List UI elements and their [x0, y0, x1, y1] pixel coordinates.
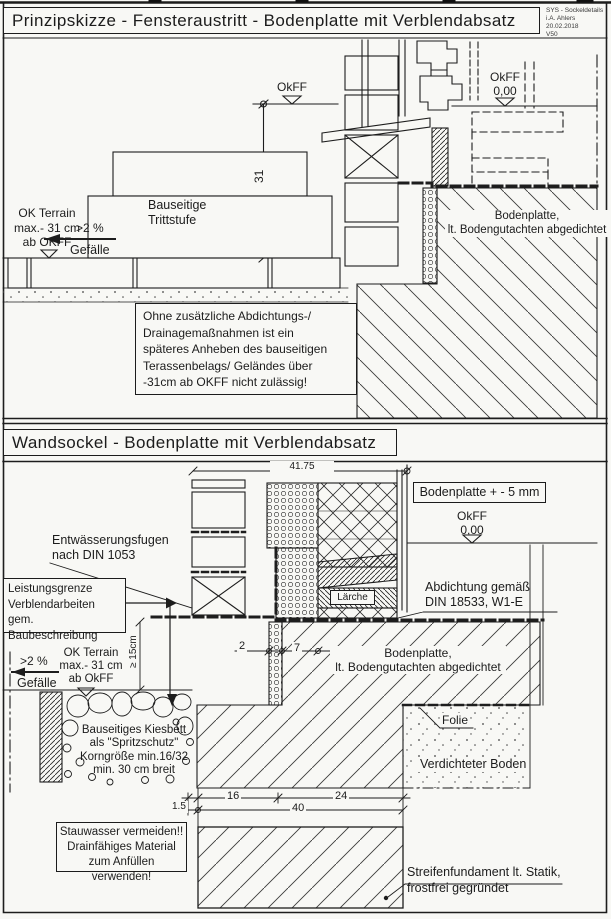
drain-joint-dashes	[192, 532, 245, 572]
veneer-masonry-top	[345, 56, 398, 266]
slope-label-bottom: >2 %	[20, 654, 48, 668]
dim-1-5-label: 1.5	[170, 801, 188, 813]
okff-marker-left	[253, 96, 338, 108]
dim-2-label: 2	[237, 640, 247, 653]
edge-strip	[40, 692, 62, 782]
step-label: Bauseitige Trittstufe	[148, 198, 206, 228]
veneer-masonry-bottom	[192, 480, 245, 615]
paving	[3, 258, 340, 288]
dim-16-label: 16	[225, 790, 241, 803]
dim-7-label: 7	[292, 642, 302, 655]
drain-joints-label: Entwässerungsfugen nach DIN 1053	[52, 533, 169, 563]
dim-40-label: 40	[290, 802, 306, 815]
slab-label-top: Bodenplatte, lt. Bodengutachten abgedich…	[445, 210, 609, 237]
slab-tolerance-box: Bodenplatte + - 5 mm	[413, 482, 546, 503]
foundation-label: Streifenfundament lt. Statik, frostfrei …	[407, 864, 561, 897]
gravel-layer-top	[3, 288, 348, 302]
stamp-block: SYS - Sockeldetails i.A. Ahlers 20.02.20…	[546, 7, 608, 40]
okff-marker-bottom	[407, 535, 597, 543]
foundation-block	[198, 827, 403, 908]
scope-arrow	[126, 598, 177, 609]
note-box-top: Ohne zusätzliche Abdichtungs-/ Drainagem…	[135, 303, 357, 395]
okff-label-right: OkFF 0,00	[470, 70, 540, 98]
dim-24-label: 24	[333, 790, 349, 803]
dim-31-label: 31	[252, 170, 266, 183]
foil-label: Folie	[440, 713, 470, 727]
step-block	[88, 152, 332, 258]
slab-label-bottom: Bodenplatte, lt. Bodengutachten abgedich…	[330, 646, 506, 674]
slope-label-top: >2 %	[76, 221, 104, 235]
window-frame	[362, 40, 478, 128]
soil-label: Verdichteter Boden	[418, 757, 528, 772]
gravel-label: Bauseitiges Kiesbett als "Spritzschutz" …	[72, 724, 196, 778]
bottom-title-text: Wandsockel - Bodenplatte mit Verblendabs…	[12, 433, 376, 453]
dim-15-label: ≥ 15cm	[128, 635, 140, 668]
drawing-sheet: Prinzipskizze - Fensteraustritt - Bodenp…	[0, 0, 611, 919]
okff-label-left: OkFF	[262, 80, 322, 94]
top-panel-title: Prinzipskizze - Fensteraustritt - Bodenp…	[3, 7, 540, 34]
bottom-panel-title: Wandsockel - Bodenplatte mit Verblendabs…	[3, 429, 397, 456]
inner-wall-edge	[397, 465, 407, 612]
top-title-text: Prinzipskizze - Fensteraustritt - Bodenp…	[12, 11, 516, 31]
gefaelle-label-top: Gefälle	[70, 243, 110, 258]
scope-box: Leistungsgrenze Verblendarbeiten gem. Ba…	[3, 578, 126, 633]
perimeter-insulation-top	[423, 188, 437, 283]
sealing-label: Abdichtung gemäß DIN 18533, W1-E	[425, 580, 530, 610]
terrain-label-bottom: OK Terrain max.- 31 cm ab OkFF	[56, 647, 126, 687]
perimeter-insulation-bottom	[269, 622, 282, 705]
dim-4175-label: 41.75	[270, 461, 334, 473]
sealing-dashed-top	[399, 183, 597, 187]
sealing-strip	[432, 128, 448, 186]
terrain-marker-top	[41, 250, 57, 258]
technical-drawing-svg	[0, 0, 611, 919]
gefaelle-label-bottom: Gefälle	[17, 676, 57, 691]
water-note-box: Stauwasser vermeiden!! Drainfähiges Mate…	[56, 822, 187, 872]
okff-label-bottom: OkFF 0,00	[442, 509, 502, 537]
larch-label: Lärche	[330, 590, 375, 605]
